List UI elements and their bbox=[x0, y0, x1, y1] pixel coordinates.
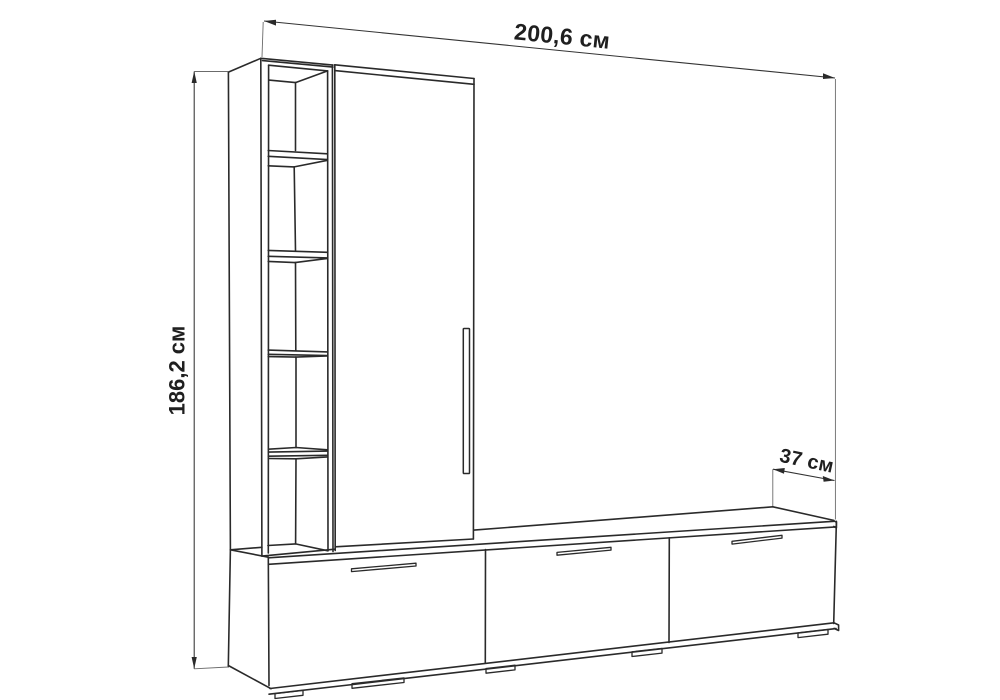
svg-text:186,2 см: 186,2 см bbox=[165, 326, 190, 416]
